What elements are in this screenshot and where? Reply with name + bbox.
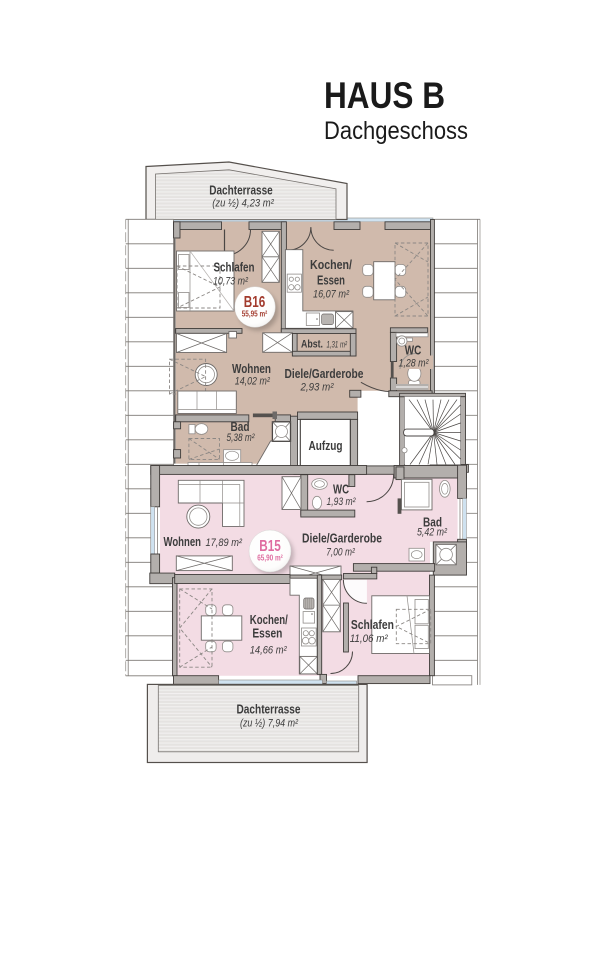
svg-text:5,38 m²: 5,38 m² bbox=[227, 432, 255, 444]
svg-text:Essen: Essen bbox=[252, 627, 282, 641]
svg-text:B16: B16 bbox=[244, 294, 266, 311]
svg-text:2,93 m²: 2,93 m² bbox=[300, 382, 334, 394]
svg-text:Kochen/: Kochen/ bbox=[250, 613, 288, 627]
svg-text:14,02 m²: 14,02 m² bbox=[235, 375, 270, 387]
svg-text:Dachgeschoss: Dachgeschoss bbox=[324, 117, 468, 145]
svg-text:Dachterrasse: Dachterrasse bbox=[237, 703, 301, 717]
svg-text:WC: WC bbox=[405, 344, 422, 358]
svg-text:Schlafen: Schlafen bbox=[351, 618, 394, 632]
svg-text:WC: WC bbox=[333, 483, 349, 497]
svg-text:55,95 m²: 55,95 m² bbox=[242, 310, 268, 319]
svg-text:Kochen/: Kochen/ bbox=[310, 258, 352, 272]
svg-text:Essen: Essen bbox=[317, 274, 345, 288]
svg-text:Dachterrasse: Dachterrasse bbox=[209, 184, 273, 198]
svg-text:17,89 m²: 17,89 m² bbox=[206, 537, 243, 549]
svg-text:Wohnen: Wohnen bbox=[232, 362, 271, 376]
svg-text:Abst.: Abst. bbox=[301, 339, 323, 351]
svg-text:Schlafen: Schlafen bbox=[214, 261, 255, 275]
svg-text:Diele/Garderobe: Diele/Garderobe bbox=[285, 367, 364, 381]
svg-text:(zu ½) 4,23 m²: (zu ½) 4,23 m² bbox=[212, 198, 274, 210]
svg-text:HAUS B: HAUS B bbox=[324, 75, 445, 116]
svg-text:14,66 m²: 14,66 m² bbox=[250, 645, 287, 657]
svg-text:11,06 m²: 11,06 m² bbox=[350, 633, 388, 645]
svg-text:1,93 m²: 1,93 m² bbox=[327, 496, 356, 508]
svg-text:7,00 m²: 7,00 m² bbox=[326, 546, 355, 558]
svg-text:16,07 m²: 16,07 m² bbox=[313, 289, 349, 301]
svg-text:65,90 m²: 65,90 m² bbox=[257, 554, 283, 563]
svg-text:1,28 m²: 1,28 m² bbox=[399, 358, 429, 370]
svg-text:Wohnen: Wohnen bbox=[164, 535, 202, 549]
svg-text:5,42 m²: 5,42 m² bbox=[417, 527, 447, 539]
svg-text:B15: B15 bbox=[259, 538, 281, 555]
svg-text:Diele/Garderobe: Diele/Garderobe bbox=[302, 532, 382, 546]
svg-text:Aufzug: Aufzug bbox=[309, 439, 343, 453]
svg-text:(zu ½) 7,94 m²: (zu ½) 7,94 m² bbox=[240, 718, 298, 730]
svg-text:1,31 m²: 1,31 m² bbox=[327, 340, 348, 351]
svg-text:10,73 m²: 10,73 m² bbox=[213, 276, 248, 288]
